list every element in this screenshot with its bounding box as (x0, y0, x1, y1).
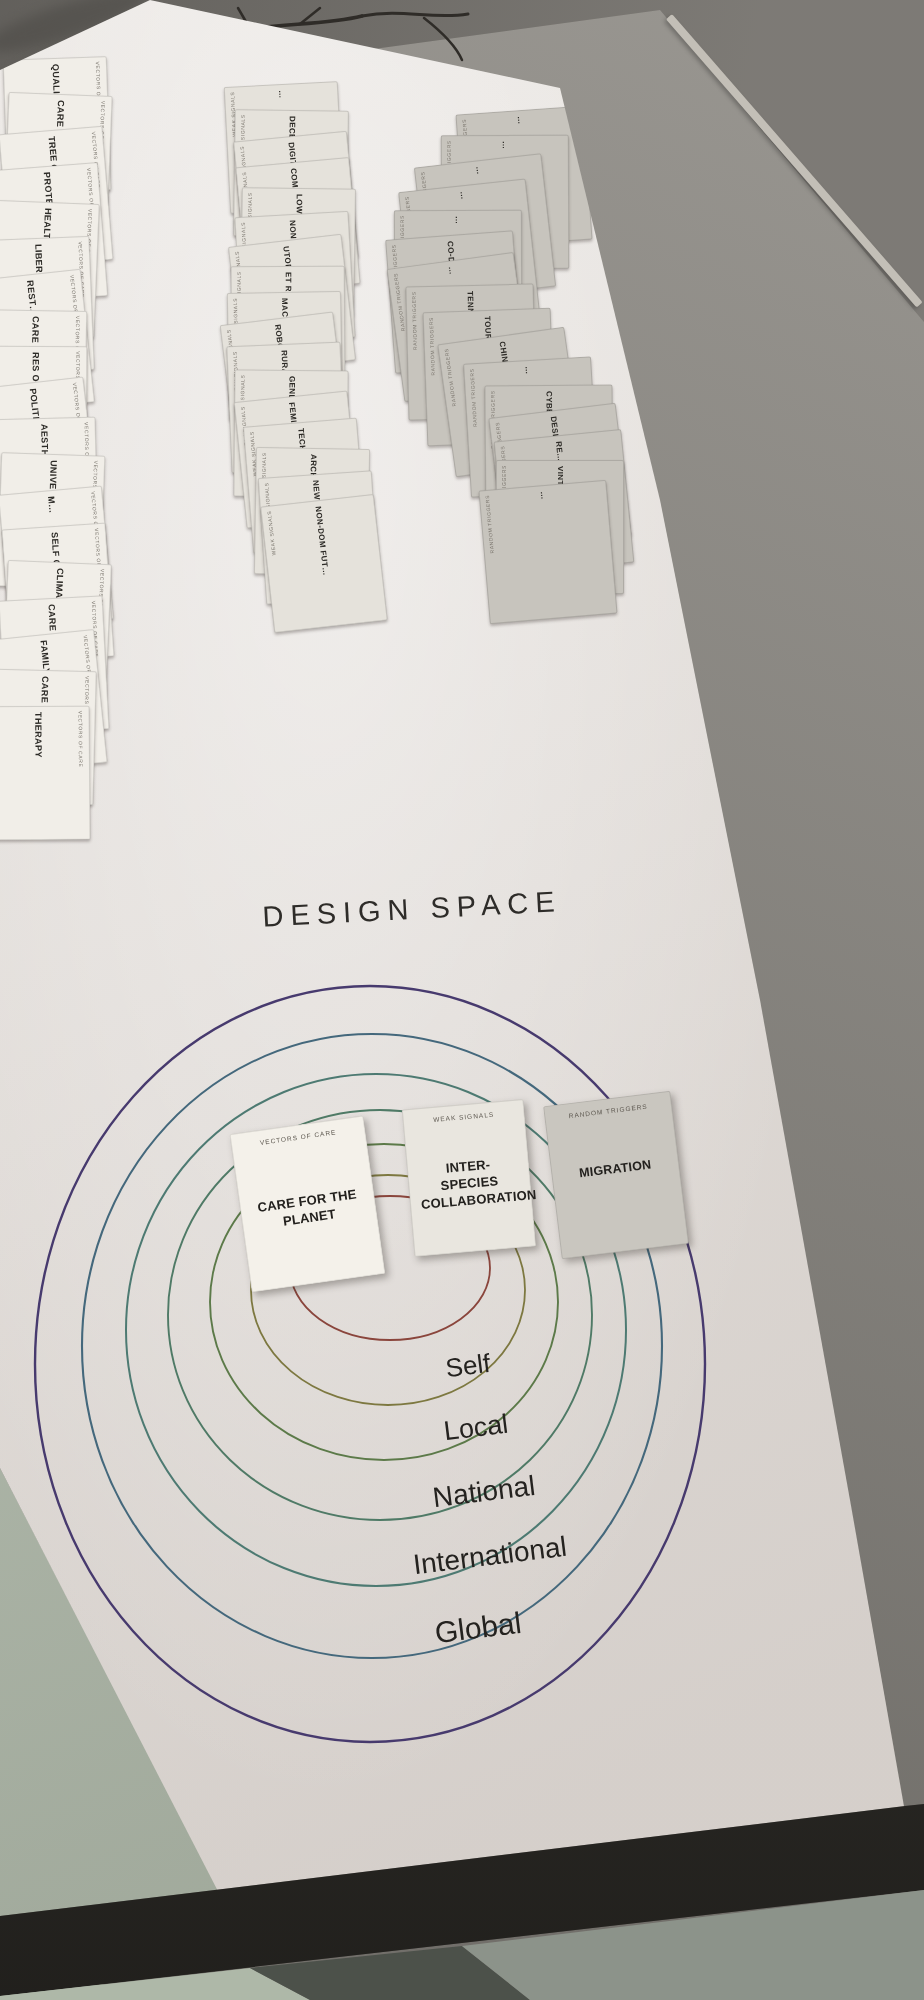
design-space-title: DESIGN SPACE (251, 885, 572, 935)
deck-card-title: THERAPY (32, 712, 44, 758)
zone-label-international: International (412, 1531, 569, 1582)
zone-label-self: Self (444, 1348, 492, 1384)
deck-name-label: RANDOM TRIGGERS (468, 368, 477, 427)
deck-name-label: RANDOM TRIGGERS (410, 291, 417, 350)
deck-name-label: RANDOM TRIGGERS (428, 317, 436, 376)
deck-card-title: … (538, 491, 549, 500)
deck-name-label: RANDOM TRIGGERS (392, 273, 406, 332)
placed-card-title: CARE FOR THE PLANET (240, 1184, 376, 1236)
placed-card-deck-label: VECTORS OF CARE (232, 1124, 365, 1149)
deck-card-title: … (515, 116, 526, 125)
deck-card-title: … (276, 90, 286, 99)
placed-card-deck-label: RANDOM TRIGGERS (545, 1100, 671, 1122)
deck-card-title: NON-DOM FUT… (312, 506, 330, 576)
deck-card-title: … (457, 191, 468, 200)
deck-card-title: … (474, 166, 485, 175)
placed-card-title: INTER-SPECIES COLLABORATION (408, 1153, 532, 1214)
deck-card-title: … (522, 366, 532, 375)
deck-name-label: RANDOM TRIGGERS (484, 495, 495, 554)
deck-card-title: M… (44, 496, 57, 514)
deck-card[interactable]: NON-DOM FUT… WEAK SIGNALS (260, 494, 387, 633)
placed-card-migration[interactable]: RANDOM TRIGGERS MIGRATION (543, 1091, 689, 1259)
deck-card[interactable]: … RANDOM TRIGGERS (479, 480, 618, 624)
deck-card-title: … (452, 216, 462, 224)
photo-stage: QUALITY… VECTORS OF CARE CARE FOR PLANTS… (0, 0, 924, 2000)
deck-card-title: RE… (553, 441, 565, 462)
deck-name-label: WEAK SIGNALS (265, 510, 276, 555)
zone-label-local: Local (442, 1409, 510, 1448)
deck-name-label: RANDOM TRIGGERS (443, 348, 457, 407)
deck-card[interactable]: THERAPY VECTORS OF CARE (0, 706, 90, 841)
deck-card-title: … (446, 266, 457, 276)
placed-card-deck-label: WEAK SIGNALS (404, 1108, 524, 1125)
deck-card-title: … (500, 141, 510, 149)
placed-card-title: MIGRATION (552, 1153, 679, 1184)
zone-label-global: Global (433, 1606, 523, 1650)
placed-card-care-for-the-planet[interactable]: VECTORS OF CARE CARE FOR THE PLANET (230, 1115, 386, 1292)
deck-name-label: VECTORS OF CARE (77, 711, 83, 768)
zone-label-national: National (431, 1470, 537, 1514)
placed-card-inter-species-collaboration[interactable]: WEAK SIGNALS INTER-SPECIES COLLABORATION (402, 1099, 536, 1257)
